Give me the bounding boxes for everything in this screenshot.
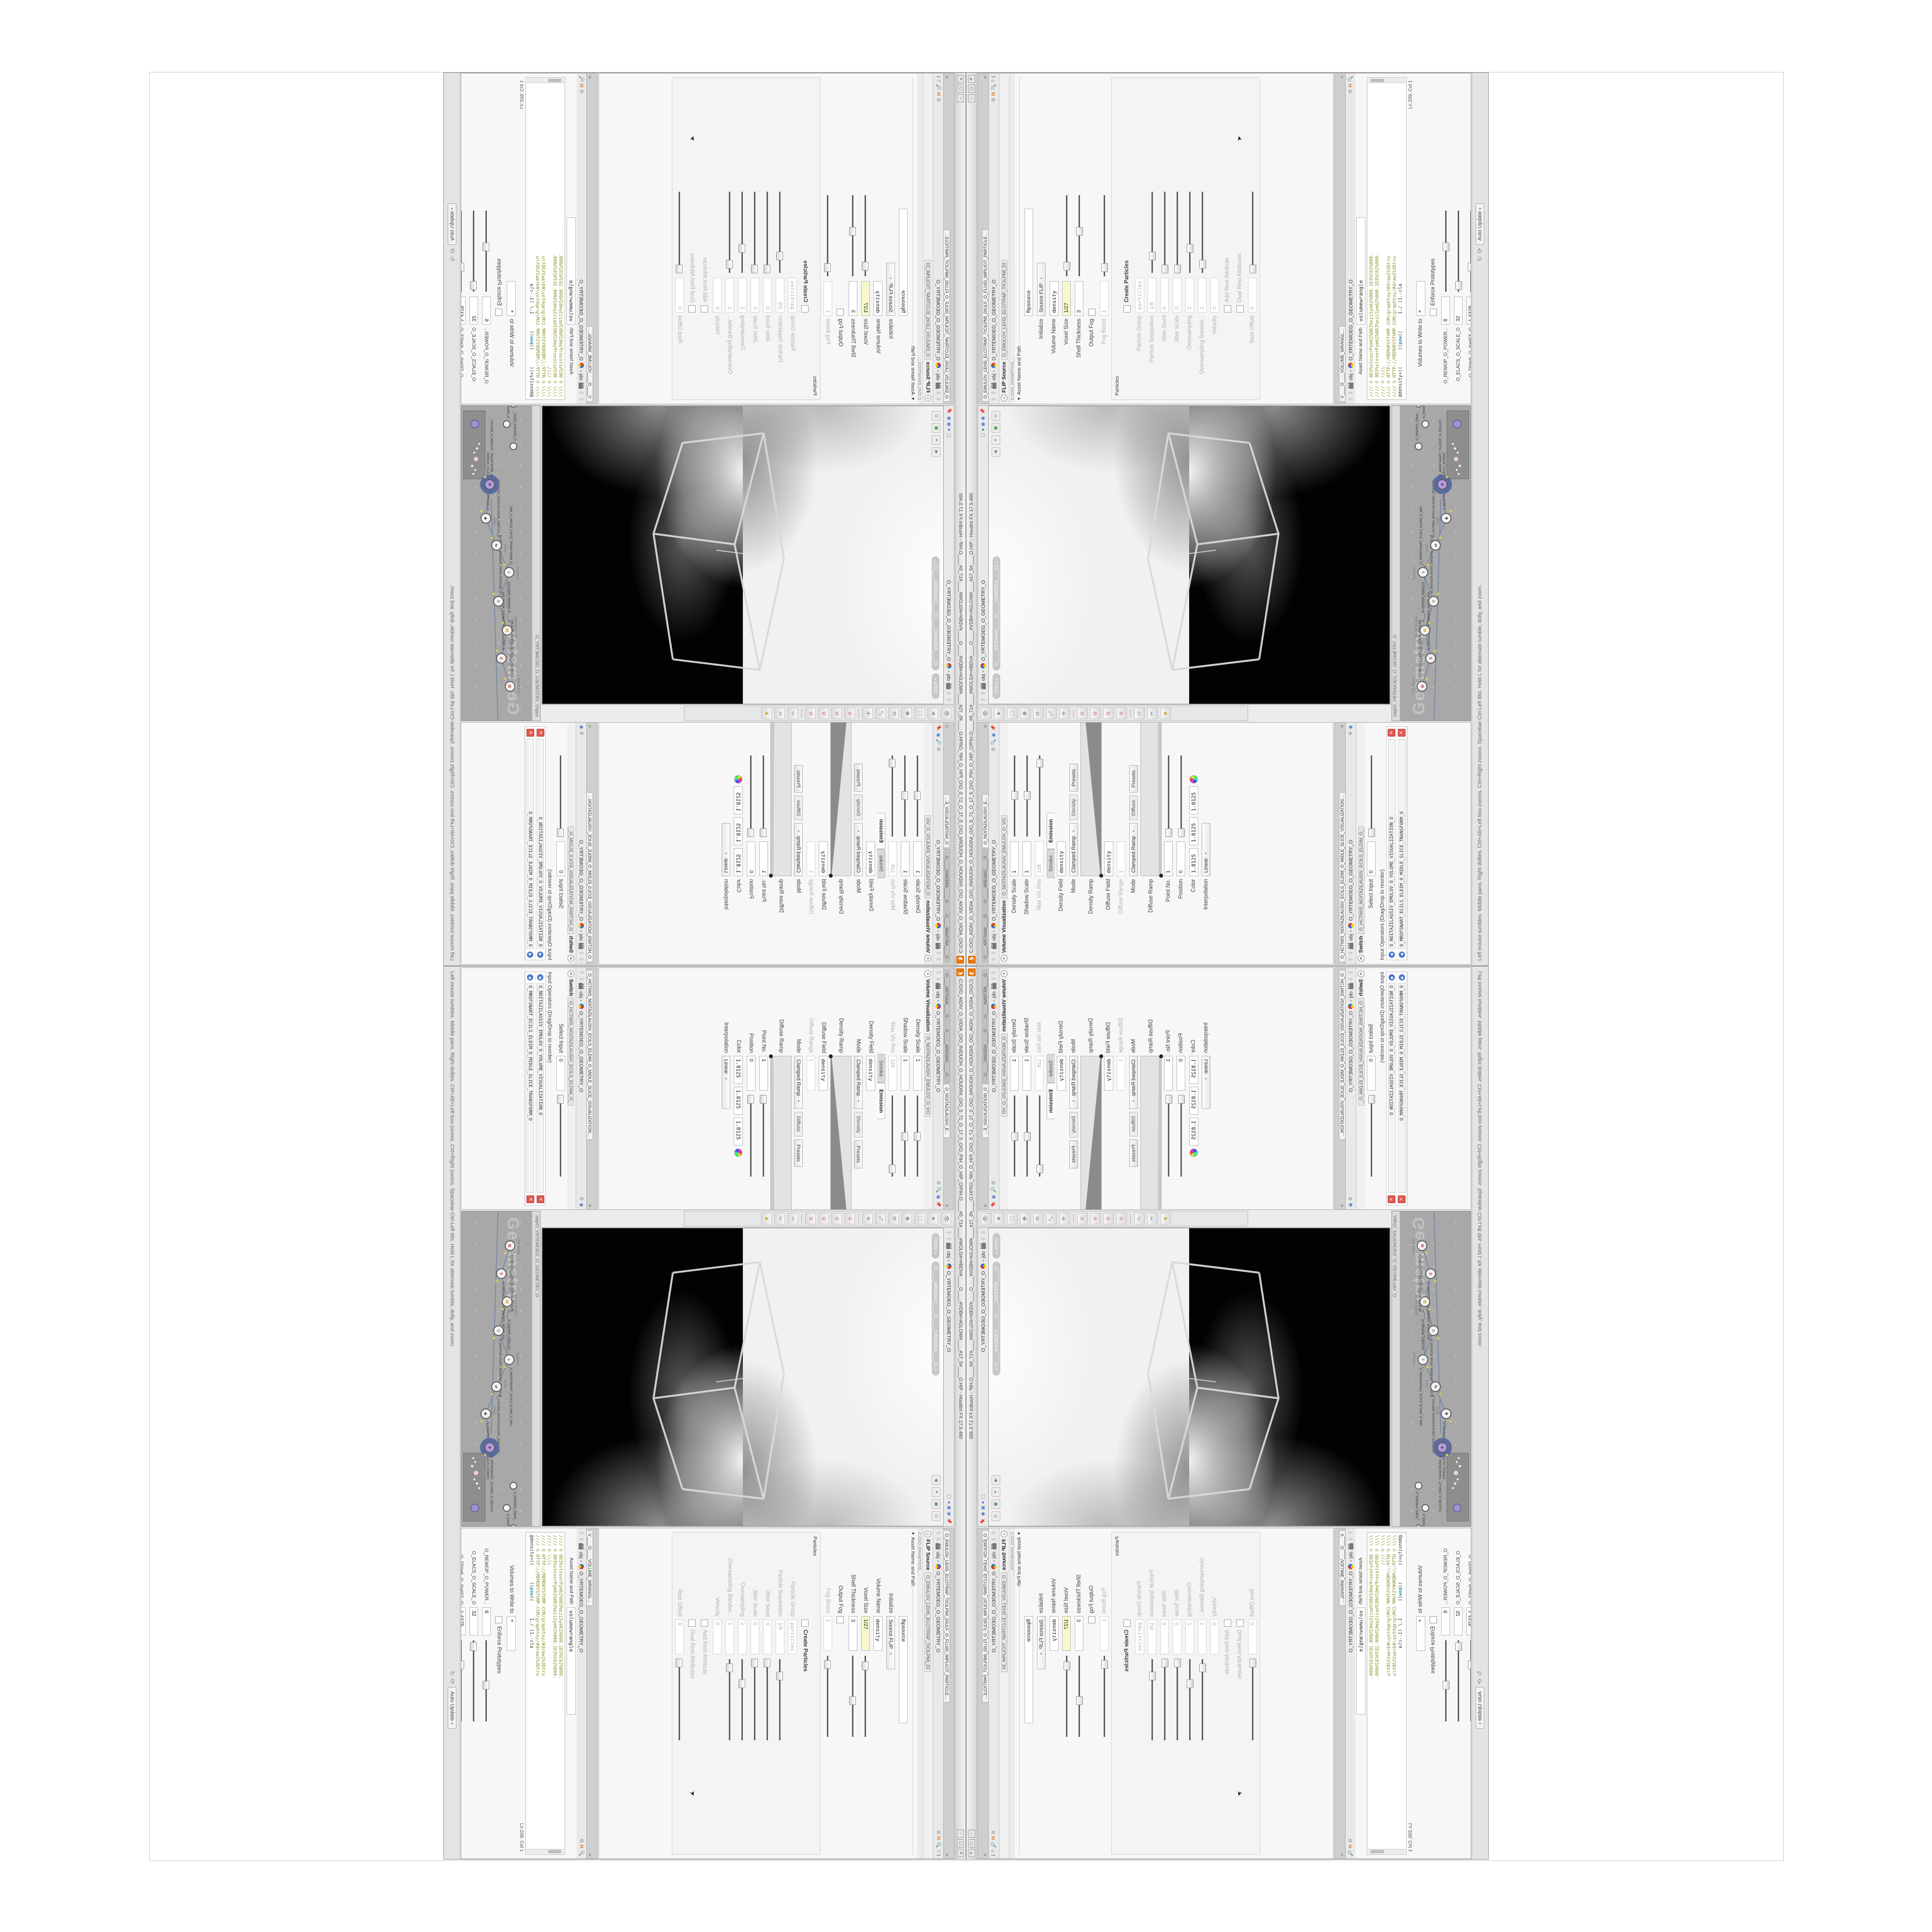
diffuse-ramp[interactable] bbox=[770, 1056, 792, 1209]
image-plane-icon[interactable]: ▣ bbox=[932, 423, 940, 433]
velocity[interactable]: 0 bbox=[1210, 1619, 1219, 1654]
link-down-icon[interactable]: ⇩ bbox=[578, 951, 584, 955]
pin-icon[interactable]: 📌 bbox=[991, 725, 996, 731]
slider-handle[interactable] bbox=[1162, 1659, 1168, 1667]
gear-icon[interactable]: ⚙ bbox=[991, 98, 996, 102]
link-down-icon[interactable]: ⇩ bbox=[935, 951, 941, 955]
network-grid[interactable]: Geometry ◎FLIP SourceO_EMULOV_LEHS_ELCIT… bbox=[461, 406, 532, 721]
link-down-icon[interactable]: ⇩ bbox=[578, 391, 584, 395]
cube-display-icon[interactable]: ◼ bbox=[946, 422, 952, 426]
color-swatch[interactable] bbox=[735, 1149, 743, 1157]
param-slider[interactable] bbox=[742, 1659, 743, 1740]
create-particles[interactable] bbox=[1123, 1619, 1131, 1627]
node-header[interactable]: ◎ FLIP Source O_EMULOV_LEHS_ELCITRAP_TIC… bbox=[999, 1528, 1009, 1859]
gear-icon[interactable]: ⚙ bbox=[936, 747, 941, 752]
param-slider[interactable] bbox=[905, 1095, 906, 1177]
color-component-field[interactable]: 1.8125 bbox=[1189, 1087, 1198, 1115]
density-scale[interactable]: 1 bbox=[1010, 1056, 1019, 1091]
link-down-icon[interactable]: ⇩ bbox=[991, 951, 997, 955]
close-button[interactable]: ✕ bbox=[957, 75, 964, 83]
slider-handle[interactable] bbox=[1064, 262, 1070, 270]
add-rest-attribute[interactable] bbox=[701, 1619, 709, 1627]
param-slider[interactable] bbox=[827, 195, 829, 276]
reorder-handle-icon[interactable]: ◀ bbox=[1389, 974, 1395, 980]
node-name-field[interactable]: flipsource bbox=[1024, 1616, 1033, 1723]
color-component-field[interactable]: 1.8125 bbox=[1189, 817, 1198, 845]
param-slider[interactable] bbox=[852, 195, 854, 276]
slider-handle[interactable] bbox=[1250, 1659, 1256, 1667]
update-mode-selector[interactable]: Auto Update ▾ bbox=[1476, 203, 1484, 245]
network-grid[interactable]: Geometry ◎FLIP SourceO_EMULOV_LEHS_ELCIT… bbox=[1400, 1211, 1471, 1526]
param-slider[interactable] bbox=[1180, 755, 1182, 837]
projection-pill[interactable]: Ortho ▾ bbox=[993, 673, 1000, 699]
param-slider[interactable] bbox=[1177, 192, 1178, 273]
radar-link-icon[interactable]: ◉ bbox=[980, 1512, 986, 1516]
particle-separation[interactable]: 1/9 bbox=[1148, 1619, 1156, 1654]
param-slider[interactable] bbox=[461, 211, 462, 292]
shift-spare[interactable]: 1.4375 bbox=[461, 297, 466, 325]
scissors-tool-icon[interactable]: ✂ bbox=[774, 1213, 785, 1224]
param-slider[interactable] bbox=[1168, 1095, 1169, 1177]
diffuse-mode-chip[interactable]: Diffuse bbox=[1129, 796, 1138, 821]
wrangle-name-field[interactable]: volumewrangle bbox=[567, 217, 576, 325]
network-node-volume-wrangle[interactable]: W bbox=[502, 1296, 512, 1307]
link-up-icon[interactable]: ⇧ bbox=[946, 1230, 952, 1235]
param-slider[interactable] bbox=[1014, 755, 1015, 837]
color-component-field[interactable]: 1.8125 bbox=[734, 848, 743, 876]
param-slider[interactable] bbox=[754, 1659, 756, 1740]
color-component-field[interactable]: 1.8125 bbox=[1189, 1118, 1198, 1146]
vex-snippet-editor[interactable]: //// © 0D3%steserPym62%0D3%eziSym62%000.… bbox=[526, 1532, 565, 1855]
diffuse-mode[interactable]: Clamped Ramp▾ bbox=[1129, 1056, 1138, 1109]
interpolation[interactable]: Linear▾ bbox=[722, 823, 730, 876]
snap-point-magnet-icon[interactable]: ∪ bbox=[1103, 708, 1114, 719]
particle-separation[interactable]: 1/9 bbox=[1148, 278, 1156, 313]
breadcrumb[interactable]: ⇧⇩ obj ▸ O_YRTEMOEG_O_GEOMETRY_O ⚙ 🔍 ◉ 📌 bbox=[933, 723, 943, 964]
param-slider[interactable] bbox=[1026, 1095, 1028, 1177]
link-up-icon[interactable]: ⇧ bbox=[980, 697, 986, 702]
radar-link-icon[interactable]: ◉ bbox=[991, 733, 996, 737]
add-rest-attribute[interactable] bbox=[1224, 305, 1231, 313]
pane-tab[interactable]: O_EMULOV_LEHS_ELCITRAP_TICILPMI_DIULF_O_… bbox=[982, 229, 988, 402]
maximize-button[interactable]: ▢ bbox=[968, 1839, 975, 1847]
velocity[interactable]: 0 bbox=[713, 1619, 722, 1654]
param-slider[interactable] bbox=[560, 1095, 562, 1177]
pane-tab[interactable]: O_HCTIWS_NOITAZILAUSIV_ECILS_ELDIM_O_MID… bbox=[587, 792, 593, 962]
param-slider[interactable] bbox=[1039, 1095, 1040, 1177]
scissors-tool-icon[interactable]: ✂ bbox=[1147, 1213, 1158, 1224]
link-down-icon[interactable]: ⇩ bbox=[991, 977, 997, 981]
minimize-button[interactable]: – bbox=[957, 1830, 964, 1838]
magnifier-icon[interactable]: 🔍 bbox=[936, 739, 941, 745]
slider-handle[interactable] bbox=[557, 1095, 564, 1104]
color-triangle-icon[interactable]: ▲ bbox=[1160, 708, 1171, 719]
network-node-vdb-from-polygons[interactable]: S bbox=[1425, 1268, 1436, 1279]
slider-handle[interactable] bbox=[1076, 227, 1083, 236]
node-name-field[interactable]: flipsource bbox=[1024, 209, 1033, 316]
color-component-field[interactable]: 1.8125 bbox=[1189, 786, 1198, 814]
rest-offset[interactable]: 0 bbox=[1248, 1619, 1257, 1654]
box-select-tool-icon[interactable]: ⬚ bbox=[1007, 1213, 1018, 1224]
camera-pill[interactable]: O____AREMAC____O____CAMERA____O ⊙ bbox=[932, 556, 939, 671]
vex-snippet-editor[interactable]: //// © 0D3%steserPym62%0D3%eziSym62%000.… bbox=[1367, 1532, 1406, 1855]
diffuse-mode[interactable]: Clamped Ramp▾ bbox=[794, 1056, 803, 1109]
param-slider[interactable] bbox=[1371, 1095, 1372, 1177]
density-scale[interactable]: 1 bbox=[913, 1056, 922, 1091]
volume-name[interactable]: density bbox=[874, 1616, 883, 1651]
pane-tab[interactable]: O____ARTNAM____O... bbox=[982, 970, 988, 1024]
magnifier-icon[interactable]: 🔍 bbox=[1348, 76, 1353, 82]
color-component-field[interactable]: 1.8125 bbox=[1189, 848, 1198, 876]
select-input[interactable]: 0 bbox=[1367, 1056, 1376, 1091]
code-scrollbar[interactable] bbox=[526, 78, 564, 83]
node-header[interactable]: ❦ Volume Visualization O_NOITAZILAUSIV_E… bbox=[923, 968, 933, 1209]
tab-emission[interactable]: Emission bbox=[1047, 1083, 1055, 1119]
shell-thickness[interactable]: 3 bbox=[849, 281, 857, 316]
diffuse-mode-chip[interactable]: Diffuse bbox=[794, 1112, 803, 1136]
rotate-tool-icon[interactable]: ⟳ bbox=[888, 708, 899, 719]
density-scale[interactable]: 1 bbox=[1010, 841, 1019, 876]
select-tool-icon[interactable]: ➤ bbox=[994, 1213, 1005, 1224]
white-square-icon[interactable]: ▢ bbox=[980, 1494, 986, 1499]
param-slider[interactable] bbox=[780, 1659, 781, 1740]
max-vis-res[interactable]: 128 bbox=[1035, 841, 1044, 876]
network-editor-pane[interactable]: /obj/O_YRTEMOEG_O_GEOMETRY_O Geometry ◎F… bbox=[461, 1211, 540, 1527]
title-bar[interactable]: C:/O/O_AIDIV_O_VIDIA_O/O_INIDUOH_O_HOUDI… bbox=[966, 73, 977, 966]
node-name-tab[interactable]: O_EMULOV_LEHS_ELCITRAP_TICILPMI_DI bbox=[1001, 1572, 1008, 1672]
info-icon[interactable]: ℹ bbox=[991, 76, 996, 78]
breadcrumb[interactable]: ⇧⇩ obj ▸ O_YRTEMOEG_O_GEOMETRY_O ⚙ H 🔍 bbox=[576, 73, 586, 404]
remove-input-button[interactable]: ✕ bbox=[526, 1195, 534, 1203]
magnifier-icon[interactable]: 🔍 bbox=[991, 1842, 996, 1847]
density-mode[interactable]: Clamped Ramp▾ bbox=[1069, 823, 1078, 876]
node-name-tab[interactable]: O_NOITAZILAUSIV_EMULOV_O_VO bbox=[1001, 815, 1008, 898]
snap-prim-magnet-icon[interactable]: ∪ bbox=[1090, 1213, 1101, 1224]
param-slider[interactable] bbox=[917, 1095, 919, 1177]
node-flag[interactable] bbox=[1426, 1366, 1429, 1368]
help-icon[interactable]: ? bbox=[936, 1850, 941, 1853]
link-down-icon[interactable]: ⇩ bbox=[1348, 1537, 1354, 1541]
gear-icon[interactable]: ⚙ bbox=[1348, 89, 1353, 94]
network-node-polywire[interactable] bbox=[503, 1504, 511, 1512]
select-tool-icon[interactable]: ➤ bbox=[927, 708, 938, 719]
power-spare[interactable]: 6 bbox=[482, 297, 491, 325]
slider-handle[interactable] bbox=[824, 1660, 831, 1669]
close-tab-icon[interactable]: ✕ bbox=[1340, 1853, 1345, 1857]
network-editor-pane[interactable]: /obj/O_YRTEMOEG_O_GEOMETRY_O Geometry ◎F… bbox=[1392, 405, 1471, 721]
slider-handle[interactable] bbox=[1178, 1095, 1185, 1104]
snap-prim-magnet-icon[interactable]: ∪ bbox=[831, 1213, 842, 1224]
remove-input-button[interactable]: ✕ bbox=[537, 1195, 544, 1203]
gear-icon[interactable]: ⚙ bbox=[991, 1830, 996, 1834]
param-slider[interactable] bbox=[1151, 1659, 1153, 1740]
position[interactable]: 0 bbox=[747, 841, 755, 876]
node-flag[interactable] bbox=[491, 537, 493, 539]
color-swatch[interactable] bbox=[735, 775, 743, 783]
param-slider[interactable] bbox=[1079, 1656, 1080, 1737]
slider-handle[interactable] bbox=[676, 265, 683, 273]
slider-handle[interactable] bbox=[777, 1672, 783, 1680]
diffuse-range[interactable]: 1 bbox=[807, 841, 815, 876]
network-path[interactable]: /obj/O_YRTEMOEG_O_GEOMETRY_O bbox=[532, 406, 540, 721]
link-up-icon[interactable]: ⇧ bbox=[1348, 1531, 1354, 1535]
info-icon[interactable]: ℹ bbox=[936, 76, 941, 78]
link-down-icon[interactable]: ⇩ bbox=[935, 391, 941, 395]
network-node-transform[interactable]: x bbox=[1418, 567, 1428, 578]
breadcrumb-geometry[interactable]: O_YRTEMOEG_O_GEOMETRY_O bbox=[946, 1271, 952, 1352]
pane-tab[interactable]: O____ARTNAM____O... bbox=[944, 908, 950, 962]
reorder-handle-icon[interactable]: ◀ bbox=[1399, 952, 1405, 958]
rest-offset[interactable]: 0 bbox=[1248, 278, 1257, 313]
gear-icon[interactable]: ⚙ bbox=[936, 1180, 941, 1185]
pane-tab[interactable]: O_____AREMAC____O... bbox=[944, 849, 950, 907]
param-slider[interactable] bbox=[852, 1656, 854, 1737]
link-up-icon[interactable]: ⇧ bbox=[991, 1531, 997, 1535]
remove-input-button[interactable]: ✕ bbox=[1388, 729, 1395, 737]
enforce-prototypes[interactable] bbox=[1430, 309, 1437, 316]
cube-display-icon[interactable]: ◼ bbox=[980, 422, 986, 426]
slider-handle[interactable] bbox=[1101, 1660, 1108, 1669]
close-tab-icon[interactable]: ✕ bbox=[587, 75, 592, 79]
volume-name[interactable]: density bbox=[874, 281, 883, 316]
breadcrumb-root[interactable]: obj bbox=[1348, 374, 1354, 381]
pane-tab[interactable]: O_NOITAZILAUSIV_E... bbox=[944, 1084, 950, 1137]
node-header[interactable]: ⇄ Switch O_HCTIWS_NOITAZILAUSIV_ECILS_EL… bbox=[566, 723, 576, 964]
param-slider[interactable] bbox=[1104, 195, 1105, 276]
wrangle-name-field[interactable]: volumewrangle bbox=[1356, 1607, 1365, 1715]
code-scrollbar[interactable] bbox=[1368, 78, 1406, 83]
pin-icon[interactable]: 📌 bbox=[991, 1201, 996, 1207]
output-fog[interactable] bbox=[837, 309, 844, 316]
back-arrow-icon[interactable]: ◀ bbox=[932, 447, 940, 457]
oversampling-bandwidth[interactable]: 1 bbox=[1198, 1619, 1207, 1654]
title-bar[interactable]: C:/O/O_AIDIV_O_VIDIA_O/O_INIDUOH_O_HOUDI… bbox=[955, 73, 966, 966]
slider-handle[interactable] bbox=[889, 759, 896, 767]
param-slider[interactable] bbox=[1445, 1640, 1447, 1721]
node-header[interactable]: ◎ FLIP Source O_EMULOV_LEHS_ELCITRAP_TIC… bbox=[923, 73, 933, 404]
dual-rest-attributes[interactable] bbox=[689, 305, 696, 313]
pane-tab[interactable]: O_____AREMAC____O... bbox=[982, 1025, 988, 1083]
param-slider[interactable] bbox=[1458, 1640, 1459, 1721]
breadcrumb-root[interactable]: obj bbox=[579, 374, 584, 381]
param-slider[interactable] bbox=[1202, 1659, 1203, 1740]
param-slider[interactable] bbox=[1164, 1659, 1165, 1740]
param-slider[interactable] bbox=[1252, 192, 1253, 273]
pane-tab[interactable]: O_HCTIWS_NOITAZILAUSIV_ECILS_ELDIM_O_MID… bbox=[1339, 970, 1345, 1140]
magnifier-icon[interactable]: 🔍 bbox=[991, 1187, 996, 1193]
viewport-canvas[interactable]: Ortho ▾ O____AREMAC____O____CAMERA____O … bbox=[542, 406, 944, 704]
sphere-display-icon[interactable]: ● bbox=[946, 428, 952, 431]
rotate-tool-icon[interactable]: ⟳ bbox=[1033, 708, 1044, 719]
slider-handle[interactable] bbox=[760, 828, 767, 837]
slider-handle[interactable] bbox=[914, 791, 921, 800]
image-plane-icon[interactable]: ▣ bbox=[932, 1499, 940, 1509]
initialize[interactable]: Source FLIP▾ bbox=[1037, 1616, 1046, 1669]
breadcrumb-geometry[interactable]: O_YRTEMOEG_O_GEOMETRY_O bbox=[936, 1011, 941, 1092]
link-up-icon[interactable]: ⇧ bbox=[980, 1230, 986, 1235]
cube-display-icon[interactable]: ◼ bbox=[980, 1506, 986, 1510]
param-slider[interactable] bbox=[1177, 1659, 1178, 1740]
pane-tab[interactable]: O_NOITAZILAUSIV_E... bbox=[982, 794, 988, 848]
param-slider[interactable] bbox=[827, 1656, 829, 1737]
recook-icon[interactable]: ↻ bbox=[1476, 1671, 1484, 1676]
close-tab-icon[interactable]: ✕ bbox=[983, 1853, 988, 1857]
network-node-sphere[interactable] bbox=[510, 442, 517, 450]
particle-group[interactable]: particles bbox=[1135, 278, 1144, 313]
power-spare[interactable]: 6 bbox=[1441, 1607, 1450, 1635]
color-swatch[interactable] bbox=[1190, 775, 1198, 783]
network-node-merge[interactable]: ◆ bbox=[481, 1408, 491, 1419]
create-particles[interactable] bbox=[802, 1619, 809, 1627]
view-tool-icon[interactable]: 👁 bbox=[940, 1213, 951, 1224]
slider-handle[interactable] bbox=[824, 263, 831, 272]
node-header[interactable]: ◎ FLIP Source O_EMULOV_LEHS_ELCITRAP_TIC… bbox=[999, 73, 1009, 404]
node-flag[interactable] bbox=[504, 678, 507, 680]
node-name-tab[interactable]: O_EMULOV_LEHS_ELCITRAP_TICILPMI_DI bbox=[1001, 260, 1008, 360]
pane-tab[interactable]: O_____AREMAC____O... bbox=[944, 1025, 950, 1083]
param-slider[interactable] bbox=[763, 1095, 765, 1177]
voxel-size[interactable]: 1/27 bbox=[1062, 281, 1071, 316]
view-tool-icon[interactable]: 👁 bbox=[981, 708, 992, 719]
close-tab-icon[interactable]: ✕ bbox=[983, 75, 988, 79]
dual-rest-attributes[interactable] bbox=[1236, 305, 1244, 313]
camera-lock-icon[interactable]: ⊙ bbox=[992, 1511, 1000, 1521]
move-tool-icon[interactable]: ✥ bbox=[1020, 1213, 1031, 1224]
breadcrumb[interactable]: ⇧⇩ obj ▸ O_YRTEMOEG_O_GEOMETRY_O ⚙ H 🔍 bbox=[1346, 73, 1356, 404]
gear-icon[interactable]: ⚙ bbox=[1348, 731, 1353, 736]
network-node-volume-wrangle[interactable]: W bbox=[1420, 1296, 1430, 1307]
slider-handle[interactable] bbox=[1368, 828, 1375, 837]
pane-tab-bar[interactable]: V____O____VOLUME_WRANGL...✕ bbox=[1335, 73, 1346, 404]
param-slider[interactable] bbox=[729, 1659, 731, 1740]
remove-input-button[interactable]: ✕ bbox=[1388, 1195, 1395, 1203]
node-flag[interactable] bbox=[501, 622, 504, 624]
pin-icon[interactable]: 📌 bbox=[936, 725, 941, 731]
voxel-size[interactable]: 1/27 bbox=[1062, 1616, 1071, 1651]
breadcrumb-root[interactable]: obj bbox=[936, 991, 941, 998]
node-flag[interactable] bbox=[504, 1252, 507, 1254]
pane-tab[interactable]: O_HCTIWS_NOITAZILAUSIV_ECILS_ELDIM_O_MID… bbox=[1339, 792, 1345, 962]
diffuse-field[interactable]: density bbox=[1104, 1056, 1113, 1091]
slider-handle[interactable] bbox=[1468, 263, 1471, 271]
tab-emission[interactable]: Emission bbox=[877, 813, 885, 849]
snap-point-magnet-icon[interactable]: ∪ bbox=[818, 1213, 829, 1224]
jitter-seed[interactable]: 0 bbox=[763, 1619, 772, 1654]
magnifier-icon[interactable]: 🔍 bbox=[579, 76, 584, 82]
network-node-volume-visualization[interactable]: V bbox=[1428, 1325, 1439, 1336]
close-button[interactable]: ✕ bbox=[957, 1849, 964, 1857]
network-path[interactable]: /obj/O_YRTEMOEG_O_GEOMETRY_O bbox=[1392, 1211, 1400, 1526]
white-square-icon[interactable]: ▢ bbox=[946, 433, 952, 438]
close-tab-icon[interactable]: ✕ bbox=[983, 1204, 988, 1207]
shift-spare[interactable]: 1.4375 bbox=[1466, 297, 1471, 325]
shift-spare[interactable]: 1.4375 bbox=[1466, 1607, 1471, 1635]
pane-tab-bar[interactable]: O____ARTNAM____O...O_____AREMAC____O...O… bbox=[943, 968, 954, 1209]
create-particles[interactable] bbox=[1123, 305, 1131, 313]
shell-thickness[interactable]: 3 bbox=[1075, 281, 1083, 316]
info-icon[interactable]: ℹ bbox=[936, 1854, 941, 1856]
breadcrumb[interactable]: ⇧⇩ obj ▸ O_YRTEMOEG_O_GEOMETRY_O ▢ ● ◼ ◉… bbox=[943, 1228, 954, 1526]
param-slider[interactable] bbox=[560, 755, 562, 837]
pane-tab[interactable]: V____O____VOLUME_WRANGL... bbox=[1339, 1530, 1345, 1606]
snap-prim-magnet-icon[interactable]: ∪ bbox=[1090, 708, 1101, 719]
close-tab-icon[interactable]: ✕ bbox=[587, 1204, 592, 1207]
slider-handle[interactable] bbox=[1468, 1661, 1471, 1669]
volumes-to-write-to[interactable]: * bbox=[507, 281, 516, 316]
sphere-display-icon[interactable]: ● bbox=[946, 1501, 952, 1504]
camera-pill[interactable]: O____AREMAC____O____CAMERA____O ⊙ bbox=[932, 1262, 939, 1376]
network-editor-pane[interactable]: /obj/O_YRTEMOEG_O_GEOMETRY_O Geometry ◎F… bbox=[461, 405, 540, 721]
network-box[interactable] bbox=[463, 411, 485, 479]
breadcrumb[interactable]: ⇧⇩ obj ▸ O_YRTEMOEG_O_GEOMETRY_O ⚙ 🔍 ◉ 📌 bbox=[933, 968, 943, 1209]
pane-tab[interactable]: O_HCTIWS_NOITAZILAUSIV_ECILS_ELDIM_O_MID… bbox=[587, 970, 593, 1140]
density-mode[interactable]: Clamped Ramp▾ bbox=[1069, 1056, 1078, 1109]
breadcrumb[interactable]: ⇧⇩ obj ▸ O_YRTEMOEG_O_GEOMETRY_O ▢ ● ◼ ◉… bbox=[978, 406, 989, 704]
tab-smoke[interactable]: Smoke bbox=[1047, 1054, 1055, 1083]
param-slider[interactable] bbox=[905, 755, 906, 837]
link-up-icon[interactable]: ⇧ bbox=[935, 957, 941, 962]
node-flag[interactable] bbox=[1437, 593, 1439, 595]
presets-button[interactable]: Presets bbox=[854, 764, 863, 792]
param-slider[interactable] bbox=[1014, 1095, 1015, 1177]
recook-all-icon[interactable]: ⟳ bbox=[448, 1679, 456, 1684]
scissors-tool-icon[interactable]: ✂ bbox=[1147, 708, 1158, 719]
param-slider[interactable] bbox=[780, 192, 781, 273]
camera-lock-icon[interactable]: ⊙ bbox=[932, 1511, 940, 1521]
node-name-tab[interactable]: O_HCTIWS_NOITAZILAUSIV_ECILS_ELDIM_O_ bbox=[568, 826, 574, 934]
param-slider[interactable] bbox=[742, 192, 743, 273]
shadow-scale[interactable]: 1 bbox=[1023, 841, 1031, 876]
reorder-handle-icon[interactable]: ◀ bbox=[538, 952, 544, 958]
param-slider[interactable] bbox=[679, 1659, 681, 1740]
close-button[interactable]: ✕ bbox=[968, 1849, 975, 1857]
density-field[interactable]: density bbox=[1057, 1056, 1066, 1091]
diffuse-ramp[interactable] bbox=[1140, 723, 1162, 876]
radar-link-icon[interactable]: ◉ bbox=[579, 725, 584, 729]
pin-icon[interactable]: 📌 bbox=[946, 1518, 952, 1524]
info-icon[interactable]: ℹ bbox=[991, 1854, 996, 1856]
param-slider[interactable] bbox=[865, 1656, 867, 1737]
link-up-icon[interactable]: ⇧ bbox=[578, 397, 584, 401]
breadcrumb[interactable]: ⇧⇩ obj ▸ O_YRTEMOEG_O_GEOMETRY_O ▢ ● ◼ ◉… bbox=[978, 1228, 989, 1526]
wrangle-name-field[interactable]: volumewrangle bbox=[1356, 217, 1365, 325]
handles-tool-icon[interactable]: ✛ bbox=[862, 708, 873, 719]
remove-input-button[interactable]: ✕ bbox=[526, 729, 534, 737]
jitter-scale[interactable]: 0 bbox=[1173, 278, 1181, 313]
breadcrumb-root[interactable]: obj bbox=[946, 674, 952, 681]
tab-emission[interactable]: Emission bbox=[1047, 813, 1055, 849]
density-ramp[interactable] bbox=[1080, 723, 1102, 876]
param-slider[interactable] bbox=[1189, 1659, 1191, 1740]
link-down-icon[interactable]: ⇩ bbox=[946, 691, 952, 696]
node-header[interactable]: ❦ Volume Visualization O_NOITAZILAUSIV_E… bbox=[923, 723, 933, 964]
input-operator-row[interactable]: ◀O_MROFSNART_ECILS_ELDIM_O_MIDLE_SLICE_T… bbox=[1397, 972, 1407, 1205]
param-slider[interactable] bbox=[865, 195, 867, 276]
slider-handle[interactable] bbox=[764, 265, 771, 273]
param-slider[interactable] bbox=[1151, 192, 1153, 273]
select-input[interactable]: 0 bbox=[556, 841, 565, 876]
density-field[interactable]: density bbox=[867, 841, 876, 876]
breadcrumb[interactable]: ⇧⇩ obj ▸ O_YRTEMOEG_O_GEOMETRY_O ⚙ H 🔍 bbox=[1346, 1528, 1356, 1859]
param-slider[interactable] bbox=[751, 755, 752, 837]
node-name-tab[interactable]: O_NOITAZILAUSIV_EMULOV_O_VO bbox=[925, 1034, 931, 1117]
radar-link-icon[interactable]: ◉ bbox=[946, 416, 952, 420]
network-node-volume-wrangle[interactable]: W bbox=[1420, 625, 1430, 636]
pane-tab[interactable]: O_____AREMAC____O... bbox=[982, 849, 988, 907]
node-name-tab[interactable]: O_EMULOV_LEHS_ELCITRAP_TICILPMI_DI bbox=[925, 260, 931, 360]
param-slider[interactable] bbox=[1039, 755, 1040, 837]
network-node-sphere[interactable] bbox=[1415, 442, 1422, 450]
